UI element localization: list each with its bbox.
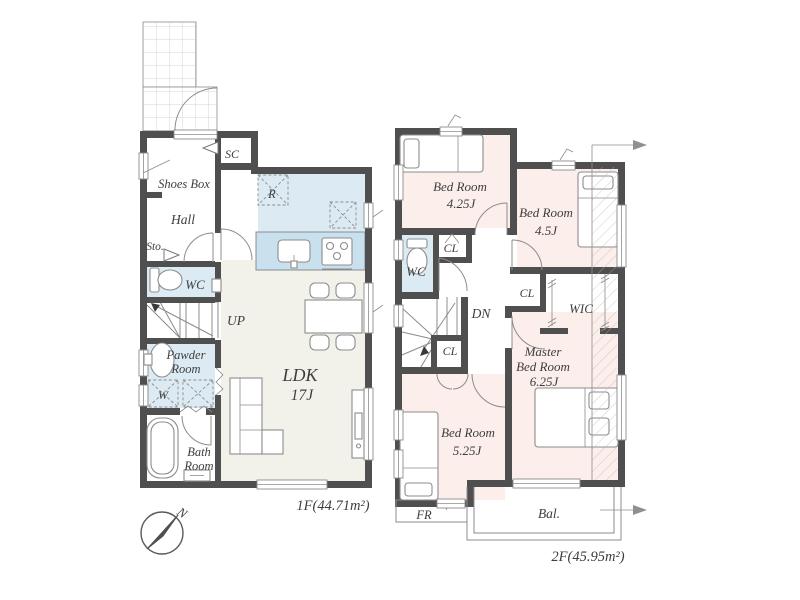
label-washer: W xyxy=(158,388,169,402)
label-master-3: 6.25J xyxy=(530,374,560,389)
label-powder-1: Pawder xyxy=(166,348,206,362)
sc-arrow xyxy=(203,142,218,154)
window-flag-2 xyxy=(560,149,573,160)
label-bed2-2: 4.5J xyxy=(535,223,558,238)
label-bed1-1: Bed Room xyxy=(433,179,487,194)
label-area-1f: 1F(44.71m²) xyxy=(296,498,369,514)
label-wic: WIC xyxy=(569,301,593,316)
label-master-2: Bed Room xyxy=(516,359,570,374)
tv-board-icon xyxy=(352,390,364,458)
label-fr: FR xyxy=(415,508,432,522)
bed-icon-5-25j xyxy=(400,412,438,500)
label-cl-c: CL xyxy=(520,286,535,300)
label-cl-a: CL xyxy=(444,241,459,255)
label-fridge: R xyxy=(267,187,276,201)
label-cl-b: CL xyxy=(443,344,458,358)
label-bed3-2: 5.25J xyxy=(453,443,483,458)
eave-arrow-top xyxy=(633,140,647,150)
floor2-plan: Bed Room 4.25J Bed Room 4.5J WC CL CL CL… xyxy=(394,115,647,565)
stairs-up xyxy=(147,302,218,338)
label-wc-1f: WC xyxy=(185,277,205,292)
window-flag-1 xyxy=(448,115,461,126)
label-shoes-box: Shoes Box xyxy=(158,177,210,191)
label-bed2-1: Bed Room xyxy=(519,205,573,220)
label-wc-2f: WC xyxy=(406,264,426,279)
label-master-1: Master xyxy=(524,344,563,359)
stairs-down xyxy=(402,297,457,372)
label-hall: Hall xyxy=(170,212,195,227)
window-ticks xyxy=(373,210,383,312)
sto-arrow xyxy=(164,249,179,261)
label-balcony: Bal. xyxy=(538,506,560,521)
label-ldk-size: 17J xyxy=(291,387,315,404)
hall-door-arc xyxy=(184,233,213,262)
floor1-plan: SC Shoes Box Hall Sto. WC UP Pawder Room… xyxy=(139,22,383,514)
label-dn: DN xyxy=(471,306,492,321)
label-bed3-1: Bed Room xyxy=(441,425,495,440)
eave-arrow-bottom xyxy=(633,505,647,515)
label-area-2f: 2F(45.95m²) xyxy=(551,549,624,565)
label-sto: Sto. xyxy=(146,241,164,253)
floor-plan-drawing: SC Shoes Box Hall Sto. WC UP Pawder Room… xyxy=(0,0,800,600)
compass-north-label: N xyxy=(174,503,192,522)
label-bath-2: Room xyxy=(183,459,213,473)
label-ldk: LDK xyxy=(281,365,318,385)
label-up: UP xyxy=(227,313,245,328)
bath-door-arc xyxy=(182,416,211,445)
stove-icon xyxy=(322,238,352,269)
label-bath-1: Bath xyxy=(187,445,211,459)
bed-icon-4-25j xyxy=(400,135,483,172)
label-powder-2: Room xyxy=(170,362,200,376)
label-sc: SC xyxy=(225,147,240,161)
compass-icon: N xyxy=(141,503,191,554)
entrance-porch xyxy=(143,22,217,131)
label-bed1-2: 4.25J xyxy=(447,196,477,211)
